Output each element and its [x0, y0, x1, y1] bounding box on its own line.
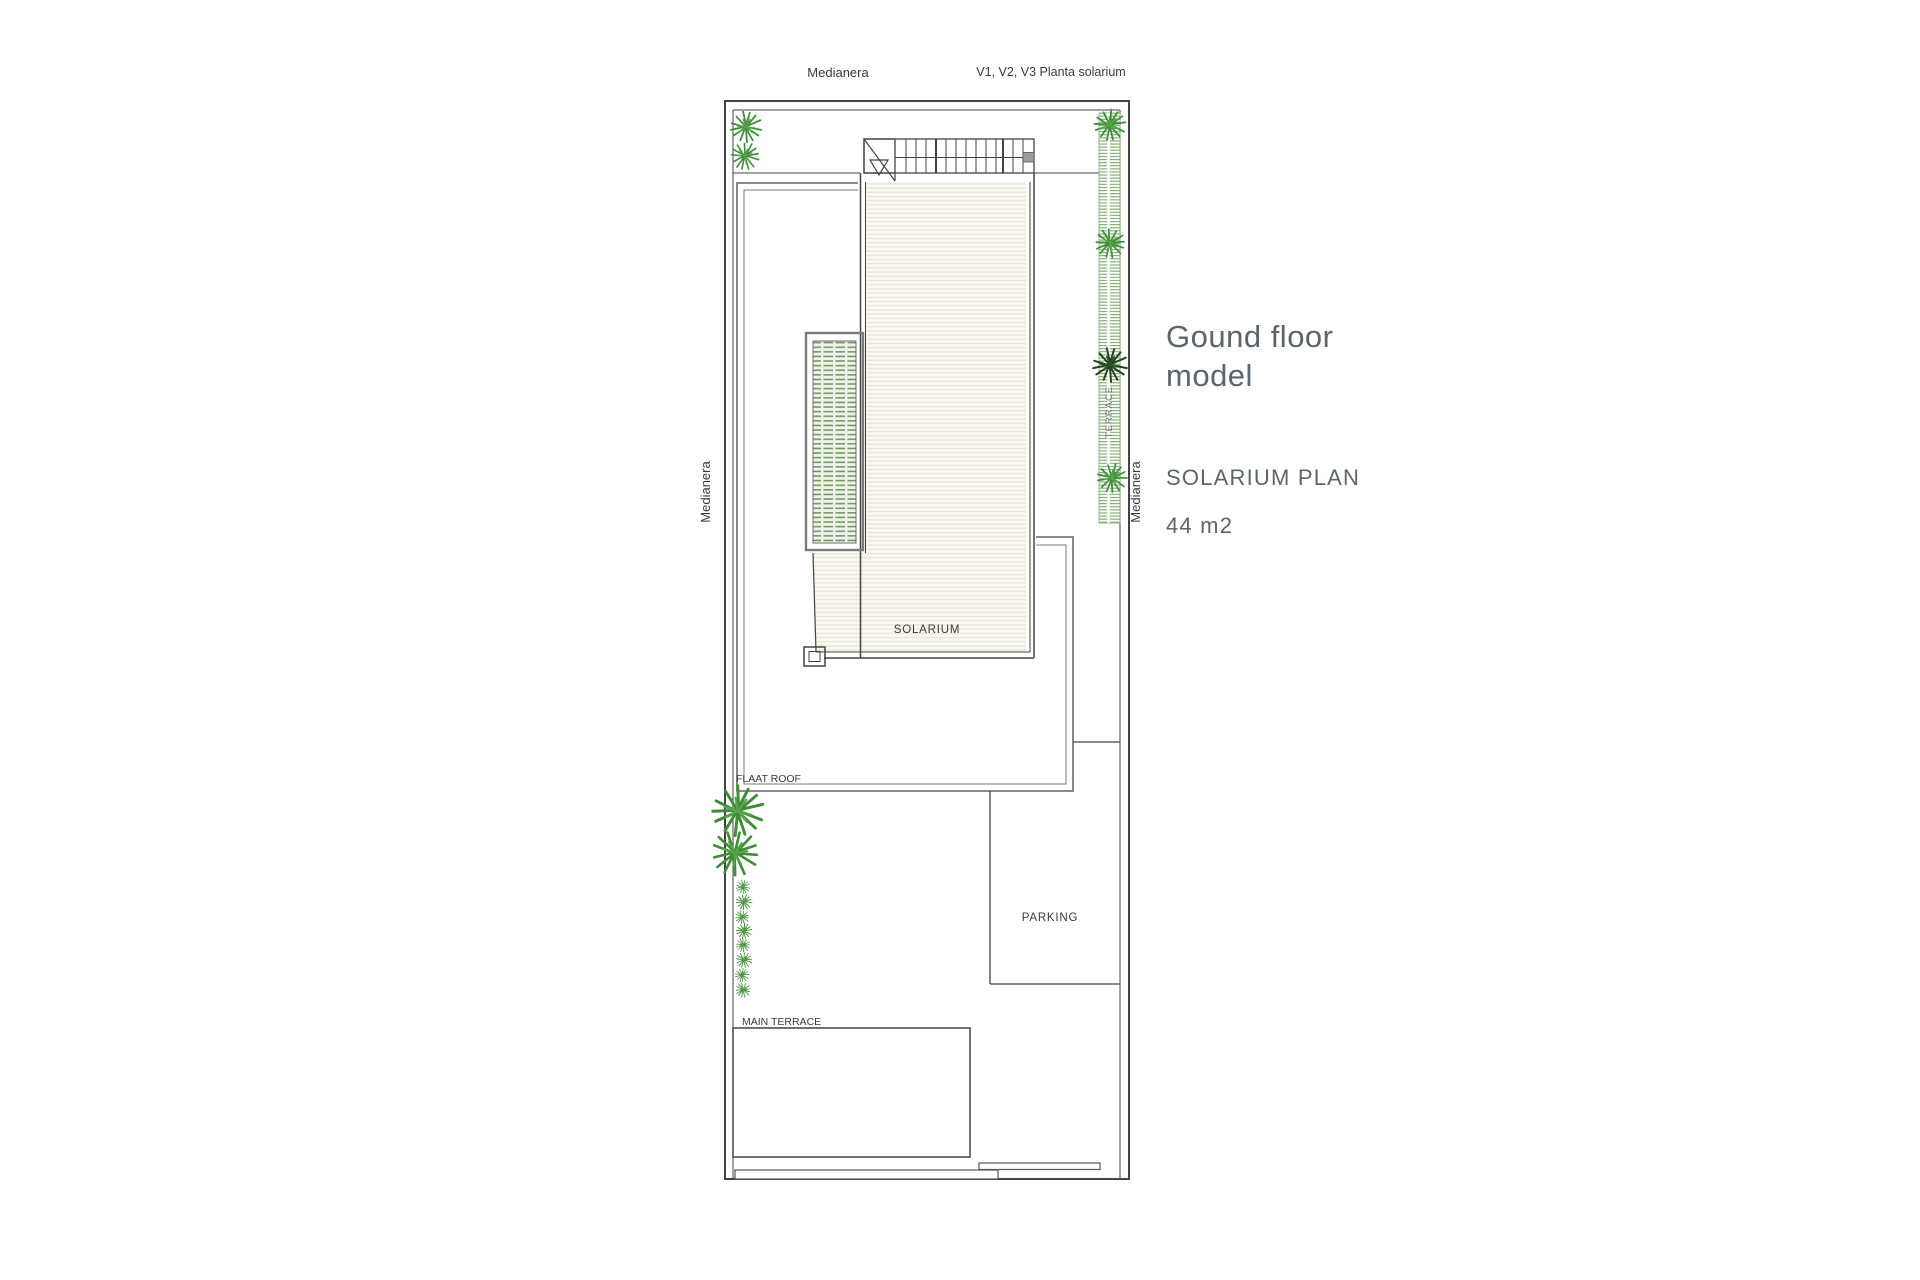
plant-icon	[726, 137, 764, 175]
parking-area	[990, 742, 1120, 984]
flat-roof-label: FLAAT ROOF	[736, 773, 801, 785]
medianera-left-label: Medianera	[698, 461, 713, 523]
shrub-row	[733, 880, 755, 999]
stair-newel-square	[864, 139, 895, 173]
solarium-label: SOLARIUM	[894, 624, 960, 636]
parking-label: PARKING	[1022, 912, 1079, 924]
main-terrace-label: MAIN TERRACE	[742, 1016, 821, 1028]
swimming-pool	[733, 1028, 970, 1157]
bottom-wall-left	[735, 1170, 998, 1179]
entrance-walls	[735, 1163, 1100, 1179]
bottom-wall-right	[979, 1163, 1100, 1170]
plan-area: 44 m2	[1166, 513, 1233, 538]
planta-solarium-note: V1, V2, V3 Planta solarium	[976, 65, 1125, 79]
plan-drawing: Medianera V1, V2, V3 Planta solarium Med…	[0, 0, 1920, 1280]
plant-icon	[731, 112, 761, 142]
title-block: Gound floor model SOLARIUM PLAN 44 m2	[1166, 319, 1360, 538]
side-terrace-strip	[1099, 113, 1120, 523]
pergola-planter	[806, 333, 863, 550]
stair-treads	[906, 139, 1023, 173]
medianera-top-label: Medianera	[807, 65, 869, 80]
floor-plan-page: Medianera V1, V2, V3 Planta solarium Med…	[0, 0, 1920, 1280]
stair-landing-block	[1023, 153, 1034, 163]
terrace-label: TERRACE	[1104, 386, 1115, 438]
staircase	[864, 139, 1034, 181]
page-title-line2: model	[1166, 358, 1253, 393]
page-title-line1: Gound floor	[1166, 319, 1334, 354]
stair-band	[864, 139, 1034, 173]
corner-column-inner	[809, 652, 820, 662]
medianera-right-label: Medianera	[1128, 461, 1143, 523]
plan-name: SOLARIUM PLAN	[1166, 465, 1360, 490]
planter-hatch	[813, 341, 856, 543]
